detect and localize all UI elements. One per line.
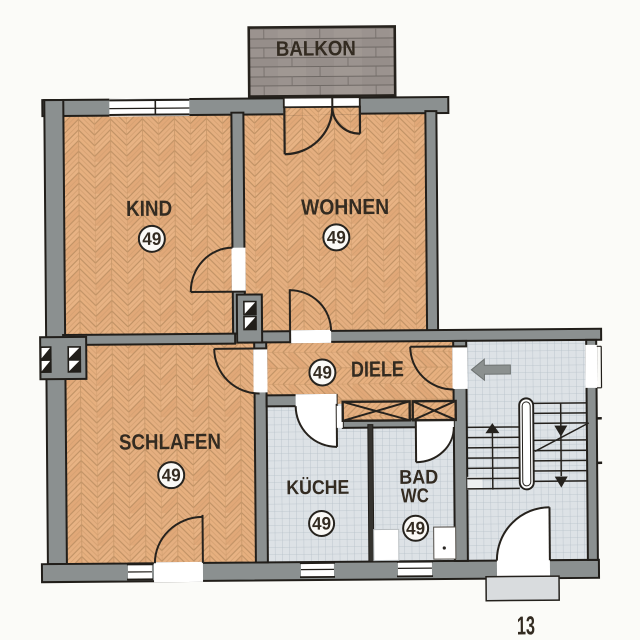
svg-text:49: 49	[327, 227, 346, 247]
svg-text:49: 49	[142, 229, 161, 249]
svg-text:49: 49	[162, 465, 181, 485]
svg-text:DIELE: DIELE	[351, 356, 404, 381]
svg-text:KIND: KIND	[126, 196, 172, 221]
svg-text:49: 49	[406, 518, 425, 538]
svg-text:49: 49	[312, 513, 331, 533]
svg-text:WOHNEN: WOHNEN	[301, 194, 389, 220]
svg-text:49: 49	[313, 362, 332, 382]
svg-text:SCHLAFEN: SCHLAFEN	[119, 429, 221, 455]
svg-text:BALKON: BALKON	[276, 37, 356, 61]
svg-text:WC: WC	[401, 485, 429, 507]
svg-text:13: 13	[517, 610, 535, 640]
svg-text:KÜCHE: KÜCHE	[286, 476, 349, 499]
